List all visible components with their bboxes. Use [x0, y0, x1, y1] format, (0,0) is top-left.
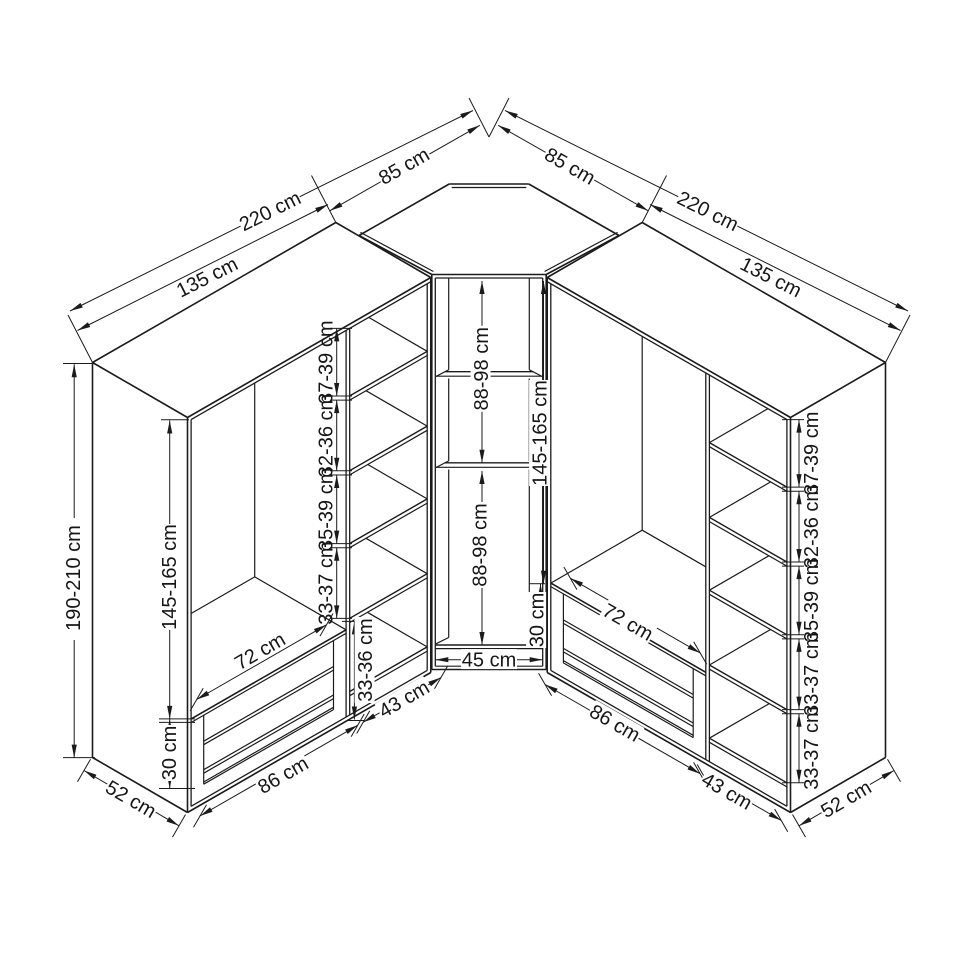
svg-text:35-39 cm: 35-39 cm — [315, 468, 337, 551]
svg-text:88-98 cm: 88-98 cm — [470, 503, 492, 586]
svg-text:145-165 cm: 145-165 cm — [529, 380, 551, 486]
svg-text:145-165 cm: 145-165 cm — [159, 524, 181, 630]
svg-text:37-39 cm: 37-39 cm — [801, 412, 823, 495]
svg-text:88-98 cm: 88-98 cm — [471, 327, 493, 410]
svg-text:33-37 cm: 33-37 cm — [801, 633, 823, 716]
svg-text:33-37 cm: 33-37 cm — [801, 706, 823, 789]
svg-text:37-39 cm: 37-39 cm — [315, 321, 337, 404]
svg-text:33-36 cm: 33-36 cm — [355, 618, 377, 701]
svg-text:45 cm: 45 cm — [462, 649, 516, 671]
svg-text:190-210 cm: 190-210 cm — [63, 525, 85, 631]
svg-text:30 cm: 30 cm — [159, 726, 181, 780]
svg-text:35-39 cm: 35-39 cm — [801, 559, 823, 642]
svg-text:32-36 cm: 32-36 cm — [801, 485, 823, 568]
svg-text:33-37 cm: 33-37 cm — [315, 541, 337, 624]
svg-text:30 cm: 30 cm — [526, 593, 548, 647]
svg-text:32-36 cm: 32-36 cm — [315, 394, 337, 477]
